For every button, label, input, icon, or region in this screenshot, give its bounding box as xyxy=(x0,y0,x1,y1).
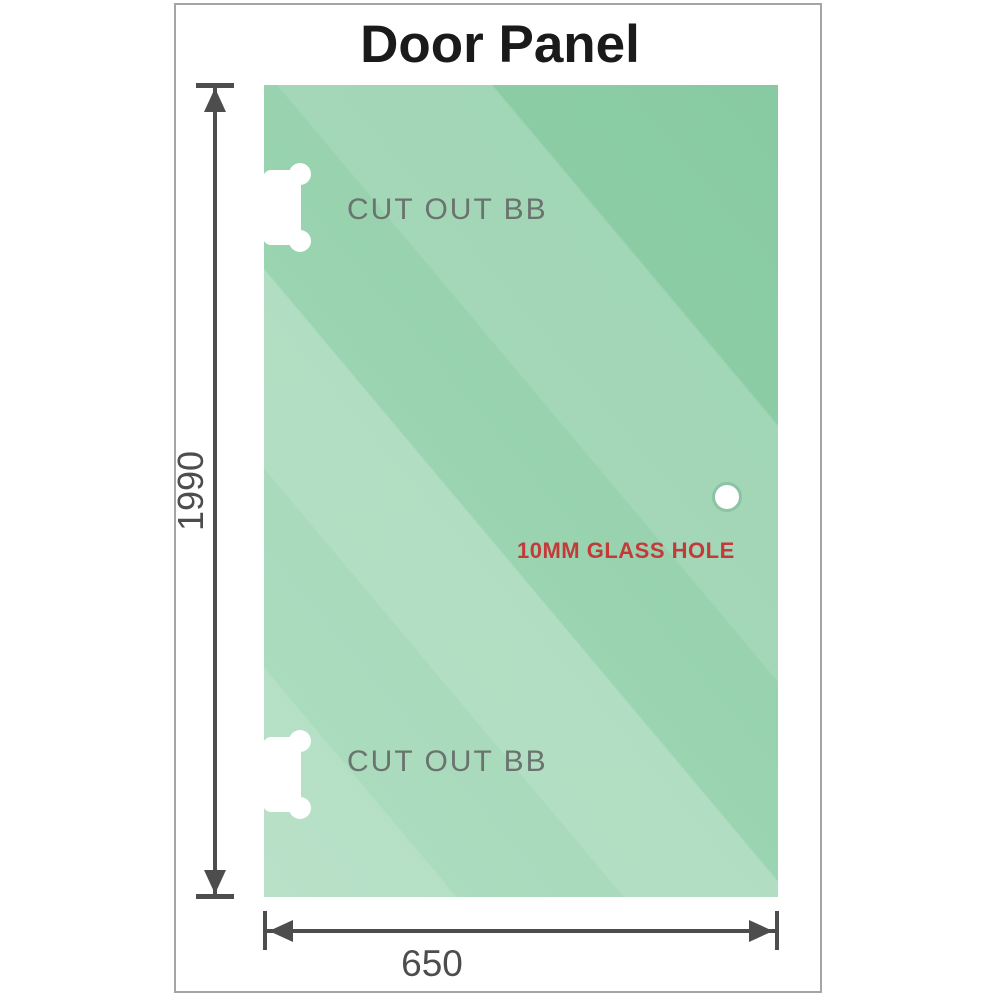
width-dimension-tick-right xyxy=(775,911,779,950)
width-dimension-line xyxy=(265,929,777,933)
hinge-cutout-top xyxy=(263,170,313,245)
glass-hole-icon xyxy=(715,485,739,509)
glass-hole-label: 10MM GLASS HOLE xyxy=(517,539,735,563)
diagram-title: Door Panel xyxy=(174,14,826,76)
hinge-cutout-lobe-icon xyxy=(289,797,311,819)
hinge-cutout-lobe-icon xyxy=(289,730,311,752)
width-dimension-value: 650 xyxy=(392,944,472,984)
hinge-cutout-bottom xyxy=(263,737,313,812)
cutout-bottom-label: CUT OUT BB xyxy=(347,747,548,777)
arrow-down-icon xyxy=(204,870,226,894)
arrow-right-icon xyxy=(749,920,773,942)
arrow-left-icon xyxy=(269,920,293,942)
cutout-top-label: CUT OUT BB xyxy=(347,195,548,225)
hinge-cutout-lobe-icon xyxy=(289,230,311,252)
door-panel-diagram: Door Panel CUT OUT BB CUT OUT BB 10MM GL… xyxy=(0,0,1000,1000)
height-dimension-cap-bottom xyxy=(196,894,234,899)
width-dimension-tick-left xyxy=(263,911,267,950)
hinge-cutout-lobe-icon xyxy=(289,163,311,185)
height-dimension-value: 1990 xyxy=(173,411,209,571)
height-dimension-line xyxy=(213,85,217,897)
arrow-up-icon xyxy=(204,88,226,112)
